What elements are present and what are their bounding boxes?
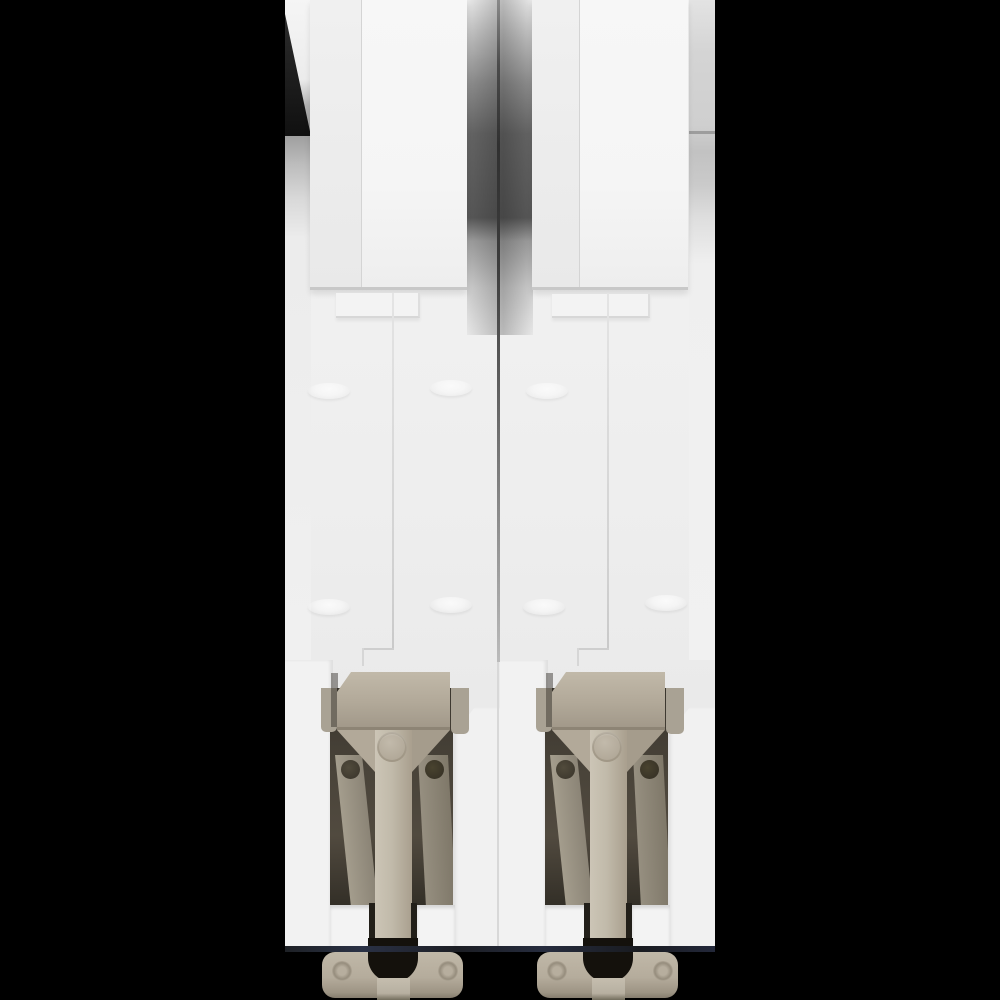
pole-joint-seam-lower [497,662,499,946]
din-slider-bar [552,672,665,730]
stem-slot-hole [583,938,633,982]
molding-dimple [526,383,568,399]
tab-face [362,0,467,287]
cavity-nub-right [451,688,469,734]
din-hook-tab-right [532,0,688,290]
body-seam-left [392,293,394,649]
housing-bottom-edge-line [285,946,715,952]
foot-dimple-right [653,961,673,981]
tab-step-right [552,294,650,318]
tab-face [580,0,688,287]
molding-dimple [308,383,350,399]
slider-stem-tip [592,978,625,1000]
din-hook-tab-left [310,0,467,290]
molding-dimple [430,597,472,613]
molding-dimple [645,595,687,611]
tab-step-left [336,293,420,318]
slider-shoulder-right [627,730,665,772]
pole-joint-seam-upper [497,0,500,662]
housing-right-edge [689,0,715,660]
stem-slot-shadow-left [584,903,590,939]
tab-side-column [532,0,580,287]
breaker-rear-view [285,0,715,1000]
slider-shoulder-right [412,730,450,772]
stem-slot-shadow-left [369,903,375,939]
stem-slot-shadow-right [626,903,632,939]
foot-dimple-left [332,961,352,981]
stem-slot-shadow-right [411,903,417,939]
molding-dimple [308,599,350,615]
slider-bar-shadow [546,673,553,727]
slider-shoulder-left [552,730,590,772]
body-seam-right [607,293,609,649]
tab-gap-shadow [467,0,533,335]
slider-stem-tip [377,978,410,1000]
tab-side-column [310,0,362,287]
slider-emboss-circle [377,732,407,762]
product-photo [0,0,1000,1000]
clip-bottom-block-right [632,905,670,948]
foot-dimple-right [438,961,458,981]
body-seam-notch-left [362,648,394,650]
clip-frame-right [668,707,715,948]
cavity-nub-right [666,688,684,734]
slider-bar-shadow [331,673,338,727]
slider-shoulder-left [337,730,375,772]
clip-frame-right [453,707,500,948]
molding-dimple [523,599,565,615]
foot-dimple-left [547,961,567,981]
right-edge-step-line [689,131,715,134]
din-slider-bar [337,672,450,730]
slider-emboss-circle [592,732,622,762]
stem-slot-hole [368,938,418,982]
clip-bottom-block-right [417,905,455,948]
body-seam-notch-right [577,648,609,650]
molding-dimple [430,380,472,396]
